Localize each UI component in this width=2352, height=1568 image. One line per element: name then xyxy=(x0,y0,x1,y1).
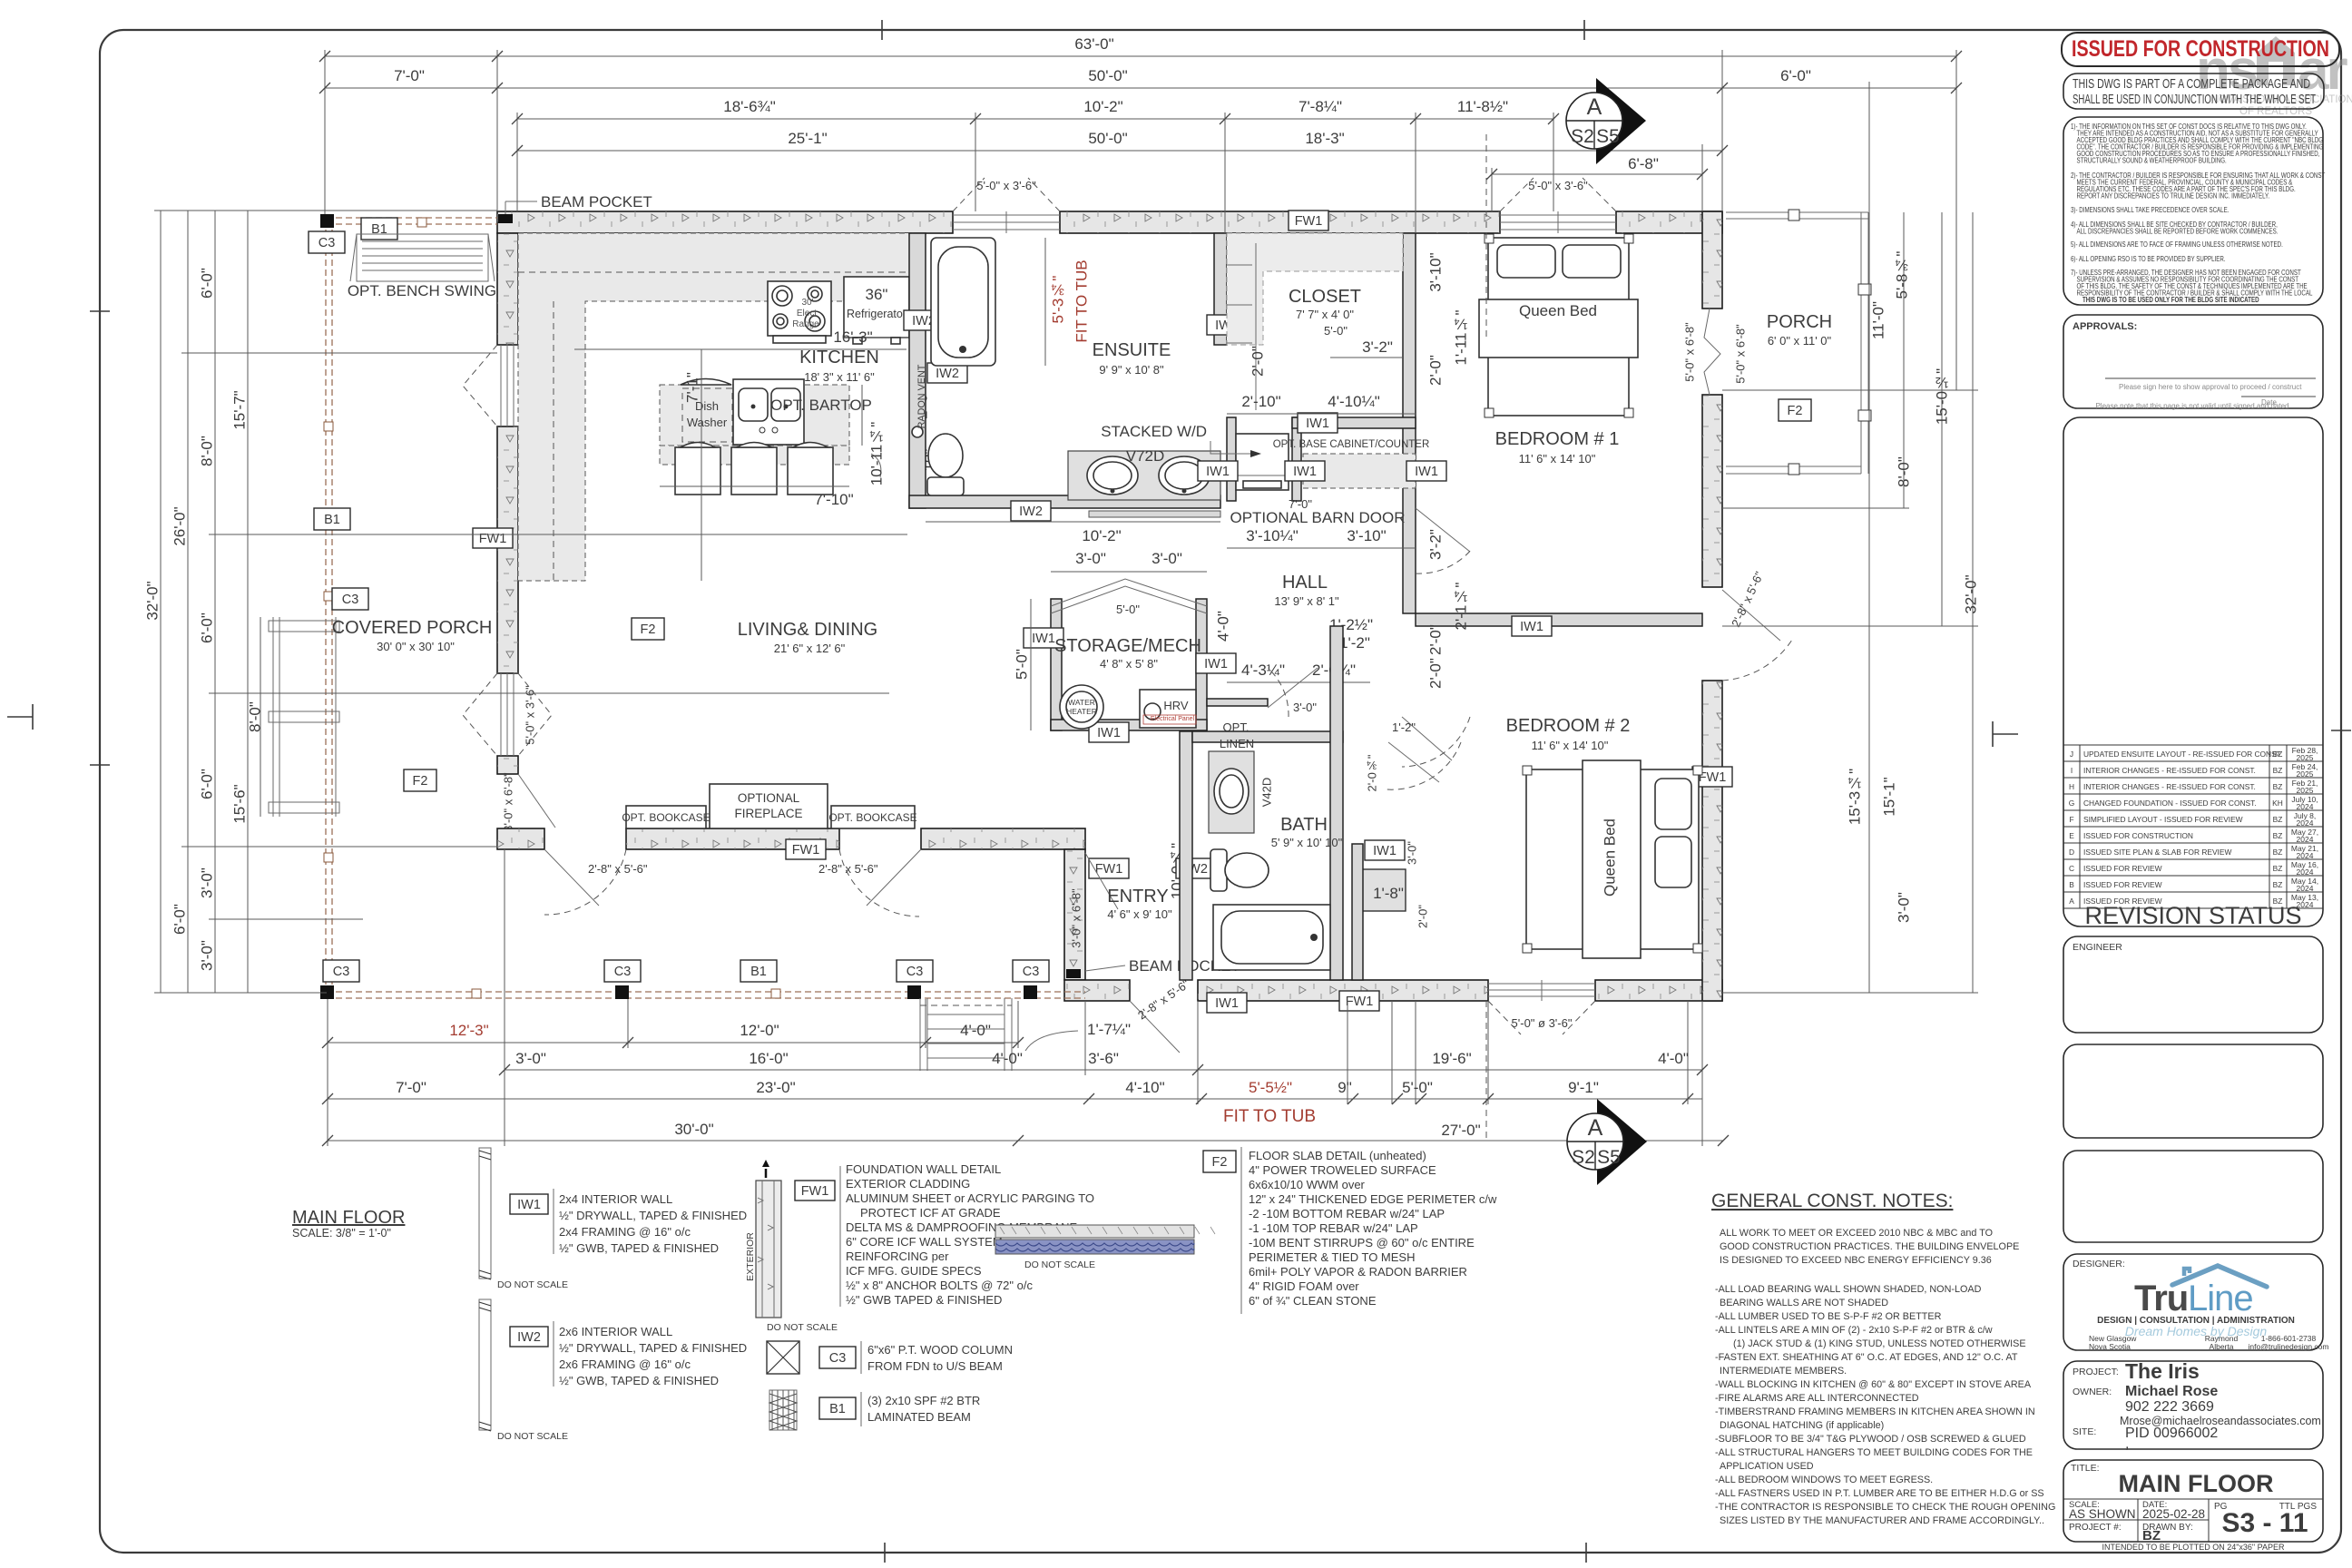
svg-text:MAIN FLOOR: MAIN FLOOR xyxy=(292,1208,405,1228)
svg-text:C3: C3 xyxy=(829,1351,847,1366)
svg-text:C3: C3 xyxy=(614,965,632,979)
svg-text:Please sign here to show appro: Please sign here to show approval to pro… xyxy=(2119,383,2302,391)
svg-text:2x6 INTERIOR WALL: 2x6 INTERIOR WALL xyxy=(559,1325,672,1338)
svg-text:STRUCTURALLY SOUND & WEATHERPR: STRUCTURALLY SOUND & WEATHERPROOF BUILDI… xyxy=(2076,155,2226,164)
svg-text:BEARING WALLS ARE NOT SHADED: BEARING WALLS ARE NOT SHADED xyxy=(1720,1298,1888,1308)
svg-text:ISSUED FOR CONSTRUCTION: ISSUED FOR CONSTRUCTION xyxy=(2083,831,2193,840)
svg-text:30'-0": 30'-0" xyxy=(674,1121,713,1138)
svg-text:30' 0" x 30' 10": 30' 0" x 30' 10" xyxy=(377,640,455,653)
svg-text:GENERAL CONST. NOTES:: GENERAL CONST. NOTES: xyxy=(1711,1191,1953,1211)
svg-text:3'-0": 3'-0" xyxy=(1896,892,1913,923)
svg-text:-TIMBERSTRAND FRAMING MEMBERS: -TIMBERSTRAND FRAMING MEMBERS IN KITCHEN… xyxy=(1715,1406,2035,1417)
svg-text:APPLICATION USED: APPLICATION USED xyxy=(1720,1461,1814,1472)
svg-text:3'-0": 3'-0" xyxy=(199,867,216,898)
svg-text:F2: F2 xyxy=(1212,1155,1228,1170)
svg-text:9'-1": 9'-1" xyxy=(1568,1079,1599,1096)
svg-text:Tru: Tru xyxy=(2134,1279,2188,1318)
svg-text:HRV: HRV xyxy=(1163,699,1189,712)
svg-text:A: A xyxy=(1588,1115,1603,1141)
svg-text:S2: S2 xyxy=(1572,1147,1595,1168)
svg-text:7'-0": 7'-0" xyxy=(396,1079,426,1096)
svg-text:UPDATED ENSUITE LAYOUT - RE-IS: UPDATED ENSUITE LAYOUT - RE-ISSUED FOR C… xyxy=(2083,750,2282,759)
svg-text:63'-0": 63'-0" xyxy=(1074,35,1113,53)
svg-text:B1: B1 xyxy=(324,513,340,527)
svg-text:B: B xyxy=(2069,880,2074,889)
svg-text:5'-0": 5'-0" xyxy=(1324,324,1347,338)
svg-text:6x6x10/10 WWM over: 6x6x10/10 WWM over xyxy=(1249,1178,1366,1191)
svg-text:32'-0": 32'-0" xyxy=(1963,574,1980,613)
svg-text:15'-1": 15'-1" xyxy=(1881,777,1898,816)
svg-text:2'-1¼": 2'-1¼" xyxy=(1453,583,1470,631)
svg-text:16'-3": 16'-3" xyxy=(833,328,872,346)
svg-text:1'-2": 1'-2" xyxy=(1339,634,1370,652)
svg-text:-1 -10M TOP REBAR w/24" LAP: -1 -10M TOP REBAR w/24" LAP xyxy=(1249,1221,1418,1235)
svg-text:21' 6" x 12' 6": 21' 6" x 12' 6" xyxy=(774,642,846,655)
svg-text:FIREPLACE: FIREPLACE xyxy=(734,807,802,820)
svg-text:I: I xyxy=(2071,766,2073,775)
svg-text:10'-2": 10'-2" xyxy=(1082,527,1121,544)
svg-text:6" CORE ICF WALL SYSTEM: 6" CORE ICF WALL SYSTEM xyxy=(846,1235,1003,1249)
svg-text:-10M BENT STIRRUPS @ 60" o/c E: -10M BENT STIRRUPS @ 60" o/c ENTIRE xyxy=(1249,1236,1475,1249)
svg-text:3'-0" x 6'-8": 3'-0" x 6'-8" xyxy=(502,772,515,832)
svg-text:OWNER:: OWNER: xyxy=(2073,1387,2112,1397)
svg-text:Please note that this page is: Please note that this page is not valid … xyxy=(2095,402,2288,410)
svg-text:(1) JACK STUD & (1) KING STUD,: (1) JACK STUD & (1) KING STUD, UNLESS NO… xyxy=(1733,1338,2026,1349)
svg-text:IS DESIGNED TO EXCEED NBC ENER: IS DESIGNED TO EXCEED NBC ENERGY EFFICIE… xyxy=(1720,1255,1992,1266)
svg-text:6)- ALL OPENING RSO IS TO BE P: 6)- ALL OPENING RSO IS TO BE PROVIDED BY… xyxy=(2071,254,2226,263)
svg-text:Washer: Washer xyxy=(687,416,728,429)
svg-text:REVISION STATUS: REVISION STATUS xyxy=(2084,902,2301,929)
svg-text:3'-0": 3'-0" xyxy=(515,1050,546,1067)
svg-text:27'-0": 27'-0" xyxy=(1441,1122,1480,1139)
svg-text:50'-0": 50'-0" xyxy=(1088,67,1127,84)
svg-text:3)- DIMENSIONS SHALL TAKE PREC: 3)- DIMENSIONS SHALL TAKE PRECEDENCE OVE… xyxy=(2071,205,2229,214)
svg-text:INTERIOR CHANGES - RE-ISSUED F: INTERIOR CHANGES - RE-ISSUED FOR CONST. xyxy=(2083,782,2256,791)
svg-text:4' 8" x 5' 8": 4' 8" x 5' 8" xyxy=(1100,657,1158,671)
svg-text:2024: 2024 xyxy=(2297,884,2314,893)
svg-text:5'-0" x 6'-8": 5'-0" x 6'-8" xyxy=(1734,324,1748,384)
svg-text:2'-0": 2'-0" xyxy=(1249,346,1267,377)
svg-text:IW1: IW1 xyxy=(1373,844,1396,858)
svg-text:E: E xyxy=(2069,831,2074,840)
svg-text:DO NOT SCALE: DO NOT SCALE xyxy=(497,1279,568,1290)
svg-text:2025: 2025 xyxy=(2297,769,2314,779)
svg-text:BZ: BZ xyxy=(2273,815,2283,824)
svg-text:OF REALTORS: OF REALTORS xyxy=(2239,106,2312,117)
svg-text:GOOD CONSTRUCTION PRACTICES. T: GOOD CONSTRUCTION PRACTICES. THE BUILDIN… xyxy=(1720,1241,2019,1252)
svg-text:15'-6": 15'-6" xyxy=(231,784,249,823)
svg-text:50'-0": 50'-0" xyxy=(1088,130,1127,147)
svg-text:ISSUED FOR REVIEW: ISSUED FOR REVIEW xyxy=(2083,864,2162,873)
svg-text:5'-0" x 3'-6": 5'-0" x 3'-6" xyxy=(976,179,1036,192)
svg-text:-2 -10M BOTTOM REBAR w/24" LAP: -2 -10M BOTTOM REBAR w/24" LAP xyxy=(1249,1207,1445,1220)
svg-text:PROJECT #:: PROJECT #: xyxy=(2069,1523,2122,1533)
svg-text:2x4 FRAMING @ 16" o/c: 2x4 FRAMING @ 16" o/c xyxy=(559,1225,691,1239)
svg-text:ENTRY: ENTRY xyxy=(1107,887,1168,906)
svg-text:Nova Scotia: Nova Scotia xyxy=(2089,1342,2131,1351)
svg-text:The Iris: The Iris xyxy=(2125,1359,2200,1383)
svg-text:IW1: IW1 xyxy=(1520,620,1543,634)
svg-text:B1: B1 xyxy=(750,965,767,979)
svg-text:C3: C3 xyxy=(906,965,924,979)
svg-text:HEATER: HEATER xyxy=(1066,707,1097,716)
svg-text:TITLE:: TITLE: xyxy=(2071,1463,2100,1474)
svg-text:,: , xyxy=(2125,1436,2129,1452)
svg-text:6' 0" x 11' 0": 6' 0" x 11' 0" xyxy=(1768,334,1832,348)
svg-text:V72D: V72D xyxy=(1126,447,1165,465)
svg-text:BZ: BZ xyxy=(2273,864,2283,873)
svg-text:ISSUED SITE PLAN & SLAB FOR RE: ISSUED SITE PLAN & SLAB FOR REVIEW xyxy=(2083,848,2231,857)
svg-text:Line: Line xyxy=(2188,1279,2253,1318)
svg-text:26'-0": 26'-0" xyxy=(171,506,189,545)
svg-text:FW1: FW1 xyxy=(479,532,507,546)
svg-text:2'-8" x 5'-6": 2'-8" x 5'-6" xyxy=(818,862,878,876)
svg-text:HALL: HALL xyxy=(1282,573,1328,593)
svg-text:INTERIOR CHANGES - RE-ISSUED F: INTERIOR CHANGES - RE-ISSUED FOR CONST. xyxy=(2083,766,2256,775)
svg-text:4'-0": 4'-0" xyxy=(1658,1050,1689,1067)
svg-text:DO NOT SCALE: DO NOT SCALE xyxy=(497,1431,568,1442)
svg-text:6" of ¾" CLEAN STONE: 6" of ¾" CLEAN STONE xyxy=(1249,1294,1377,1308)
svg-text:12" x 24" THICKENED EDGE PERIM: 12" x 24" THICKENED EDGE PERIMETER c/w xyxy=(1249,1192,1497,1206)
svg-text:RADON VENT: RADON VENT xyxy=(916,364,927,428)
svg-text:V42D: V42D xyxy=(1260,778,1274,808)
svg-text:BEDROOM # 1: BEDROOM # 1 xyxy=(1495,429,1620,449)
svg-text:2025-02-28: 2025-02-28 xyxy=(2142,1507,2205,1521)
svg-text:5'-0" ø 3'-6": 5'-0" ø 3'-6" xyxy=(1512,1016,1573,1030)
svg-text:2'-0": 2'-0" xyxy=(1427,624,1445,655)
svg-text:PORCH: PORCH xyxy=(1767,312,1832,332)
svg-text:½" DRYWALL, TAPED & FINISHED: ½" DRYWALL, TAPED & FINISHED xyxy=(559,1209,747,1222)
svg-text:FW1: FW1 xyxy=(1346,995,1374,1009)
svg-text:Range: Range xyxy=(792,319,819,329)
svg-text:2'-8" x 5'-6": 2'-8" x 5'-6" xyxy=(588,862,648,876)
svg-text:STORAGE/MECH: STORAGE/MECH xyxy=(1054,636,1201,656)
svg-text:3'-0": 3'-0" xyxy=(1406,841,1419,865)
svg-text:2'-0": 2'-0" xyxy=(1416,905,1430,928)
svg-text:902 222 3669: 902 222 3669 xyxy=(2125,1399,2214,1415)
svg-text:OPT.: OPT. xyxy=(1223,720,1249,734)
svg-text:INTERMEDIATE MEMBERS.: INTERMEDIATE MEMBERS. xyxy=(1720,1366,1847,1377)
svg-text:4'-10¼": 4'-10¼" xyxy=(1328,393,1379,410)
svg-text:FOUNDATION WALL DETAIL: FOUNDATION WALL DETAIL xyxy=(846,1162,1001,1176)
svg-text:6mil+ POLY VAPOR & RADON BARRI: 6mil+ POLY VAPOR & RADON BARRIER xyxy=(1249,1265,1467,1279)
svg-text:5' 9" x 10' 10": 5' 9" x 10' 10" xyxy=(1271,836,1343,849)
svg-text:15'-7": 15'-7" xyxy=(231,390,249,429)
svg-text:6'-0": 6'-0" xyxy=(199,268,216,299)
svg-text:C3: C3 xyxy=(318,236,336,250)
svg-text:5'-5½": 5'-5½" xyxy=(1249,1079,1292,1096)
svg-text:5'-8¾": 5'-8¾" xyxy=(1894,251,1911,299)
svg-text:Dream Homes by Design: Dream Homes by Design xyxy=(2125,1324,2268,1338)
svg-text:2024: 2024 xyxy=(2297,867,2314,877)
svg-text:4'-3¼": 4'-3¼" xyxy=(1241,661,1285,679)
svg-text:15'-3¼": 15'-3¼" xyxy=(1847,769,1864,825)
svg-text:3'-10¼": 3'-10¼" xyxy=(1246,527,1298,544)
svg-text:BZ: BZ xyxy=(2273,766,2283,775)
svg-text:SITE:: SITE: xyxy=(2073,1426,2096,1437)
svg-text:3'-2": 3'-2" xyxy=(1362,338,1393,356)
svg-text:FW1: FW1 xyxy=(1295,214,1323,229)
svg-text:5'-3¾": 5'-3¾" xyxy=(1050,276,1067,324)
svg-text:36": 36" xyxy=(866,286,888,303)
svg-text:6"x6" P.T. WOOD COLUMN: 6"x6" P.T. WOOD COLUMN xyxy=(867,1343,1013,1357)
svg-text:2024: 2024 xyxy=(2297,851,2314,860)
svg-text:OPTIONAL: OPTIONAL xyxy=(738,791,800,805)
svg-text:3'-0" x 6'-8": 3'-0" x 6'-8" xyxy=(1070,888,1083,948)
svg-text:½" GWB, TAPED & FINISHED: ½" GWB, TAPED & FINISHED xyxy=(559,1241,719,1255)
svg-text:REPORT ANY DISCREPANCIES TO TR: REPORT ANY DISCREPANCIES TO TRULINE DESI… xyxy=(2076,191,2269,200)
svg-text:WATER: WATER xyxy=(1068,698,1095,707)
svg-text:9": 9" xyxy=(1338,1079,1352,1096)
svg-text:4'-0": 4'-0" xyxy=(960,1022,991,1039)
svg-text:2'-10": 2'-10" xyxy=(1241,393,1280,410)
svg-text:-ALL LINTELS ARE A MIN OF (2): -ALL LINTELS ARE A MIN OF (2) - 2x10 S-P… xyxy=(1715,1325,1993,1336)
svg-text:ALL DISCREPANCIES SHALL BE REP: ALL DISCREPANCIES SHALL BE REPORTED BEFO… xyxy=(2076,226,2278,235)
svg-text:OPT. BOOKCASE: OPT. BOOKCASE xyxy=(828,811,916,824)
svg-text:2'-0": 2'-0" xyxy=(1427,658,1445,689)
svg-text:ALUMINUM SHEET or ACRYLIC PARG: ALUMINUM SHEET or ACRYLIC PARGING TO xyxy=(846,1191,1094,1205)
svg-text:FIT TO TUB: FIT TO TUB xyxy=(1223,1107,1316,1126)
svg-text:J: J xyxy=(2070,750,2073,759)
svg-text:FW1: FW1 xyxy=(801,1184,829,1199)
svg-text:BZ: BZ xyxy=(2273,750,2283,759)
svg-text:BZ: BZ xyxy=(2142,1528,2161,1543)
svg-text:S3 - 11: S3 - 11 xyxy=(2221,1508,2308,1538)
svg-text:IW2: IW2 xyxy=(517,1330,541,1345)
svg-text:2024: 2024 xyxy=(2297,802,2314,811)
svg-text:PID 00966002: PID 00966002 xyxy=(2125,1426,2218,1441)
svg-text:2'-0¾": 2'-0¾" xyxy=(1366,754,1379,791)
svg-text:3'-0": 3'-0" xyxy=(1075,550,1106,567)
svg-text:6'-0": 6'-0" xyxy=(1780,67,1811,84)
svg-text:(3) 2x10 SPF #2 BTR: (3) 2x10 SPF #2 BTR xyxy=(867,1394,980,1407)
svg-text:BZ: BZ xyxy=(2273,880,2283,889)
svg-text:F: F xyxy=(2069,815,2073,824)
svg-text:18' 3" x 11' 6": 18' 3" x 11' 6" xyxy=(804,370,875,384)
svg-text:3'-2": 3'-2" xyxy=(1427,529,1445,560)
svg-text:FLOOR SLAB DETAIL (unheated): FLOOR SLAB DETAIL (unheated) xyxy=(1249,1149,1426,1162)
svg-text:-ALL STRUCTURAL HANGERS TO MEE: -ALL STRUCTURAL HANGERS TO MEET BUILDING… xyxy=(1715,1447,2033,1458)
svg-text:B1: B1 xyxy=(829,1402,846,1416)
svg-text:13' 9" x 8' 1": 13' 9" x 8' 1" xyxy=(1274,594,1339,608)
svg-text:23'-0": 23'-0" xyxy=(756,1079,795,1096)
svg-text:FIT TO TUB: FIT TO TUB xyxy=(1073,260,1091,342)
svg-text:Michael Rose: Michael Rose xyxy=(2125,1384,2218,1399)
svg-text:7'-0": 7'-0" xyxy=(394,67,425,84)
svg-text:1'-2": 1'-2" xyxy=(1392,720,1416,734)
svg-text:F2: F2 xyxy=(413,774,428,789)
svg-text:IW1: IW1 xyxy=(1204,657,1228,671)
svg-text:5'-0" x 6'-8": 5'-0" x 6'-8" xyxy=(1683,322,1697,382)
svg-text:info@trulinedesign.com: info@trulinedesign.com xyxy=(2249,1342,2329,1351)
svg-text:3'-10": 3'-10" xyxy=(1347,527,1386,544)
svg-text:BZ: BZ xyxy=(2273,848,2283,857)
svg-text:7'-1": 7'-1" xyxy=(684,372,701,403)
svg-text:2025: 2025 xyxy=(2297,753,2314,762)
svg-text:½" GWB TAPED & FINISHED: ½" GWB TAPED & FINISHED xyxy=(846,1293,1002,1307)
svg-text:4'-0": 4'-0" xyxy=(992,1050,1023,1067)
svg-text:3'-0": 3'-0" xyxy=(1293,701,1317,714)
svg-text:B1: B1 xyxy=(371,222,387,237)
svg-text:Refrigerator: Refrigerator xyxy=(847,308,906,320)
svg-text:EXTERIOR: EXTERIOR xyxy=(745,1232,756,1281)
svg-text:SIZES LISTED BY THE MANUFACTUR: SIZES LISTED BY THE MANUFACTURER AND FRA… xyxy=(1720,1515,2044,1526)
svg-text:19'-6": 19'-6" xyxy=(1432,1050,1471,1067)
svg-text:Alberta: Alberta xyxy=(2210,1342,2234,1351)
svg-text:H: H xyxy=(2069,782,2074,791)
svg-text:-SUBFLOOR TO BE 3/4" T&G PLYWO: -SUBFLOOR TO BE 3/4" T&G PLYWOOD / OSB S… xyxy=(1715,1434,2026,1445)
svg-text:½" x 8" ANCHOR BOLTS @ 72" o/c: ½" x 8" ANCHOR BOLTS @ 72" o/c xyxy=(846,1279,1033,1292)
svg-text:2x4 INTERIOR WALL: 2x4 INTERIOR WALL xyxy=(559,1192,672,1206)
svg-text:DESIGNER:: DESIGNER: xyxy=(2073,1259,2125,1269)
svg-text:2'-0": 2'-0" xyxy=(1427,355,1445,386)
svg-text:OPTIONAL BARN DOOR: OPTIONAL BARN DOOR xyxy=(1230,509,1405,526)
svg-text:Queen Bed: Queen Bed xyxy=(1602,818,1619,897)
svg-text:BATH: BATH xyxy=(1280,815,1328,835)
svg-text:-ALL LOAD BEARING WALL SHOWN S: -ALL LOAD BEARING WALL SHOWN SHADED, NON… xyxy=(1715,1284,1982,1295)
svg-text:10'-2": 10'-2" xyxy=(1083,98,1122,115)
svg-text:Electrical Panel: Electrical Panel xyxy=(1151,716,1195,722)
svg-text:F2: F2 xyxy=(1788,404,1803,418)
svg-text:REINFORCING per: REINFORCING per xyxy=(846,1249,949,1263)
svg-text:FW1: FW1 xyxy=(1095,862,1123,877)
svg-text:5'-0": 5'-0" xyxy=(1014,649,1031,680)
svg-text:IW1: IW1 xyxy=(1206,465,1230,479)
svg-text:7'-8¼": 7'-8¼" xyxy=(1298,98,1342,115)
svg-text:15'-0½": 15'-0½" xyxy=(1934,368,1951,425)
svg-text:IW1: IW1 xyxy=(1306,416,1329,431)
svg-text:OPT. BARTOP: OPT. BARTOP xyxy=(770,397,872,414)
svg-text:-ALL FASTNERS USED IN P.T. LUM: -ALL FASTNERS USED IN P.T. LUMBER ARE TO… xyxy=(1715,1488,2044,1499)
svg-text:SIMPLIFIED LAYOUT - ISSUED FOR: SIMPLIFIED LAYOUT - ISSUED FOR REVIEW xyxy=(2083,815,2243,824)
svg-text:SHALL BE USED IN CONJUNCTION W: SHALL BE USED IN CONJUNCTION WITH THE WH… xyxy=(2073,93,2316,107)
svg-text:7' 7" x 4' 0": 7' 7" x 4' 0" xyxy=(1296,308,1354,321)
svg-text:OPT. BOOKCASE: OPT. BOOKCASE xyxy=(622,811,710,824)
svg-text:3'-0": 3'-0" xyxy=(1151,550,1182,567)
svg-text:30': 30' xyxy=(801,298,813,308)
svg-text:APPROVALS:: APPROVALS: xyxy=(2073,321,2137,332)
svg-text:2x6 FRAMING @ 16" o/c: 2x6 FRAMING @ 16" o/c xyxy=(559,1357,691,1371)
svg-text:9' 9" x 10' 8": 9' 9" x 10' 8" xyxy=(1099,363,1164,377)
svg-text:2025: 2025 xyxy=(2297,786,2314,795)
svg-text:S5: S5 xyxy=(1597,1147,1621,1168)
svg-text:5'-0": 5'-0" xyxy=(1402,1079,1433,1096)
svg-text:BZ: BZ xyxy=(2273,831,2283,840)
svg-text:11' 6" x 14' 10": 11' 6" x 14' 10" xyxy=(1532,739,1609,752)
svg-text:LAMINATED BEAM: LAMINATED BEAM xyxy=(867,1410,971,1424)
svg-text:4" RIGID FOAM over: 4" RIGID FOAM over xyxy=(1249,1279,1359,1293)
svg-text:3'-6": 3'-6" xyxy=(1088,1050,1119,1067)
svg-text:Queen Bed: Queen Bed xyxy=(1519,302,1597,319)
svg-text:ENGINEER: ENGINEER xyxy=(2073,942,2122,953)
svg-text:3'-10": 3'-10" xyxy=(1427,252,1445,291)
svg-text:6'-0": 6'-0" xyxy=(199,612,216,643)
svg-text:ICF MFG. GUIDE SPECS: ICF MFG. GUIDE SPECS xyxy=(846,1264,982,1278)
svg-text:½" GWB, TAPED & FINISHED: ½" GWB, TAPED & FINISHED xyxy=(559,1374,719,1387)
svg-text:BZ: BZ xyxy=(2273,782,2283,791)
svg-text:OPT. BASE CABINET/COUNTER: OPT. BASE CABINET/COUNTER xyxy=(1273,439,1430,450)
svg-text:THIS DWG IS TO BE USED ONLY FO: THIS DWG IS TO BE USED ONLY FOR THE BLDG… xyxy=(2082,295,2259,304)
svg-text:32'-0": 32'-0" xyxy=(144,581,162,620)
svg-text:IW2: IW2 xyxy=(1019,505,1043,519)
svg-text:FW1: FW1 xyxy=(792,843,820,857)
svg-text:IW1: IW1 xyxy=(517,1198,541,1212)
svg-text:BEAM POCKET: BEAM POCKET xyxy=(541,193,652,211)
svg-text:4'-0": 4'-0" xyxy=(1215,611,1232,642)
svg-text:IW1: IW1 xyxy=(1032,632,1055,646)
svg-text:ALL WORK TO MEET OR EXCEED 201: ALL WORK TO MEET OR EXCEED 2010 NBC & MB… xyxy=(1720,1228,1993,1239)
svg-text:1'-11¼": 1'-11¼" xyxy=(1453,309,1470,365)
svg-text:FROM FDN to U/S BEAM: FROM FDN to U/S BEAM xyxy=(867,1359,1003,1373)
svg-text:EXTERIOR CLADDING: EXTERIOR CLADDING xyxy=(846,1177,970,1191)
svg-text:IW1: IW1 xyxy=(1293,465,1317,479)
svg-text:C3: C3 xyxy=(1023,965,1040,979)
svg-text:CHANGED FOUNDATION - ISSUED FO: CHANGED FOUNDATION - ISSUED FOR CONST. xyxy=(2083,799,2257,808)
svg-text:IW1: IW1 xyxy=(1415,465,1438,479)
svg-text:Elect: Elect xyxy=(797,309,817,318)
svg-text:5'-0" x 3'-6": 5'-0" x 3'-6" xyxy=(524,685,537,745)
svg-text:5)- ALL DIMENSIONS ARE TO FACE: 5)- ALL DIMENSIONS ARE TO FACE OF FRAMIN… xyxy=(2071,240,2283,249)
svg-text:4' 6" x 9' 10": 4' 6" x 9' 10" xyxy=(1107,907,1172,921)
svg-text:D: D xyxy=(2069,848,2074,857)
svg-text:COVERED PORCH: COVERED PORCH xyxy=(332,618,493,638)
svg-text:11'-8½": 11'-8½" xyxy=(1457,98,1508,115)
svg-text:6'-0": 6'-0" xyxy=(199,769,216,799)
svg-text:STACKED W/D: STACKED W/D xyxy=(1101,423,1207,440)
svg-text:10'-11¼": 10'-11¼" xyxy=(868,422,886,486)
svg-text:18'-6¾": 18'-6¾" xyxy=(723,98,775,115)
svg-text:PROTECT ICF AT GRADE: PROTECT ICF AT GRADE xyxy=(860,1206,1001,1220)
svg-text:8'-0": 8'-0" xyxy=(1896,456,1913,487)
svg-text:-THE CONTRACTOR IS RESPONSIBLE: -THE CONTRACTOR IS RESPONSIBLE TO CHECK … xyxy=(1715,1502,2055,1513)
svg-text:PROJECT:: PROJECT: xyxy=(2073,1367,2119,1377)
svg-text:DIAGONAL HATCHING (if applicab: DIAGONAL HATCHING (if applicable) xyxy=(1720,1420,1884,1431)
svg-text:12'-3": 12'-3" xyxy=(449,1022,488,1039)
svg-text:CLOSET: CLOSET xyxy=(1289,287,1361,307)
svg-text:8'-0": 8'-0" xyxy=(199,436,216,466)
svg-text:ISSUED FOR CONSTRUCTION: ISSUED FOR CONSTRUCTION xyxy=(2072,36,2329,62)
svg-text:C: C xyxy=(2069,864,2074,873)
svg-text:SCALE: 3/8" = 1'-0": SCALE: 3/8" = 1'-0" xyxy=(292,1227,391,1240)
svg-text:KH: KH xyxy=(2272,799,2283,808)
svg-text:S2: S2 xyxy=(1571,126,1594,147)
svg-text:-WALL BLOCKING IN KITCHEN @ 60: -WALL BLOCKING IN KITCHEN @ 60" & 80" EX… xyxy=(1715,1379,2032,1390)
svg-text:KITCHEN: KITCHEN xyxy=(799,348,879,367)
svg-text:F2: F2 xyxy=(641,622,656,637)
svg-text:-FIRE ALARMS ARE ALL INTERCONN: -FIRE ALARMS ARE ALL INTERCONNECTED xyxy=(1715,1393,1919,1404)
svg-text:S5: S5 xyxy=(1596,126,1620,147)
svg-text:18'-3": 18'-3" xyxy=(1305,130,1344,147)
svg-text:G: G xyxy=(2069,799,2075,808)
svg-text:2024: 2024 xyxy=(2297,818,2314,828)
svg-text:IW1: IW1 xyxy=(1097,726,1121,740)
svg-text:12'-0": 12'-0" xyxy=(740,1022,779,1039)
svg-text:ISSUED FOR REVIEW: ISSUED FOR REVIEW xyxy=(2083,880,2162,889)
svg-text:1'-8": 1'-8" xyxy=(1373,885,1404,902)
svg-text:4" POWER TROWELED SURFACE: 4" POWER TROWELED SURFACE xyxy=(1249,1163,1436,1177)
svg-text:25'-1": 25'-1" xyxy=(788,130,827,147)
svg-text:AS SHOWN: AS SHOWN xyxy=(2069,1507,2136,1521)
svg-text:-ALL LUMBER USED TO BE S-P-F #: -ALL LUMBER USED TO BE S-P-F #2 OR BETTE… xyxy=(1715,1311,1942,1322)
svg-text:A: A xyxy=(1587,94,1602,120)
svg-text:11' 6" x 14' 10": 11' 6" x 14' 10" xyxy=(1519,452,1596,465)
svg-text:-FASTEN EXT. SHEATHING AT 6" O: -FASTEN EXT. SHEATHING AT 6" O.C. AT EDG… xyxy=(1715,1352,2018,1363)
svg-text:-ALL BEDROOM WINDOWS TO MEET E: -ALL BEDROOM WINDOWS TO MEET EGRESS. xyxy=(1715,1475,1933,1485)
svg-text:LINEN: LINEN xyxy=(1220,737,1254,750)
svg-text:3'-0": 3'-0" xyxy=(199,940,216,971)
svg-text:½" DRYWALL, TAPED & FINISHED: ½" DRYWALL, TAPED & FINISHED xyxy=(559,1341,747,1355)
svg-text:A: A xyxy=(2069,897,2074,906)
